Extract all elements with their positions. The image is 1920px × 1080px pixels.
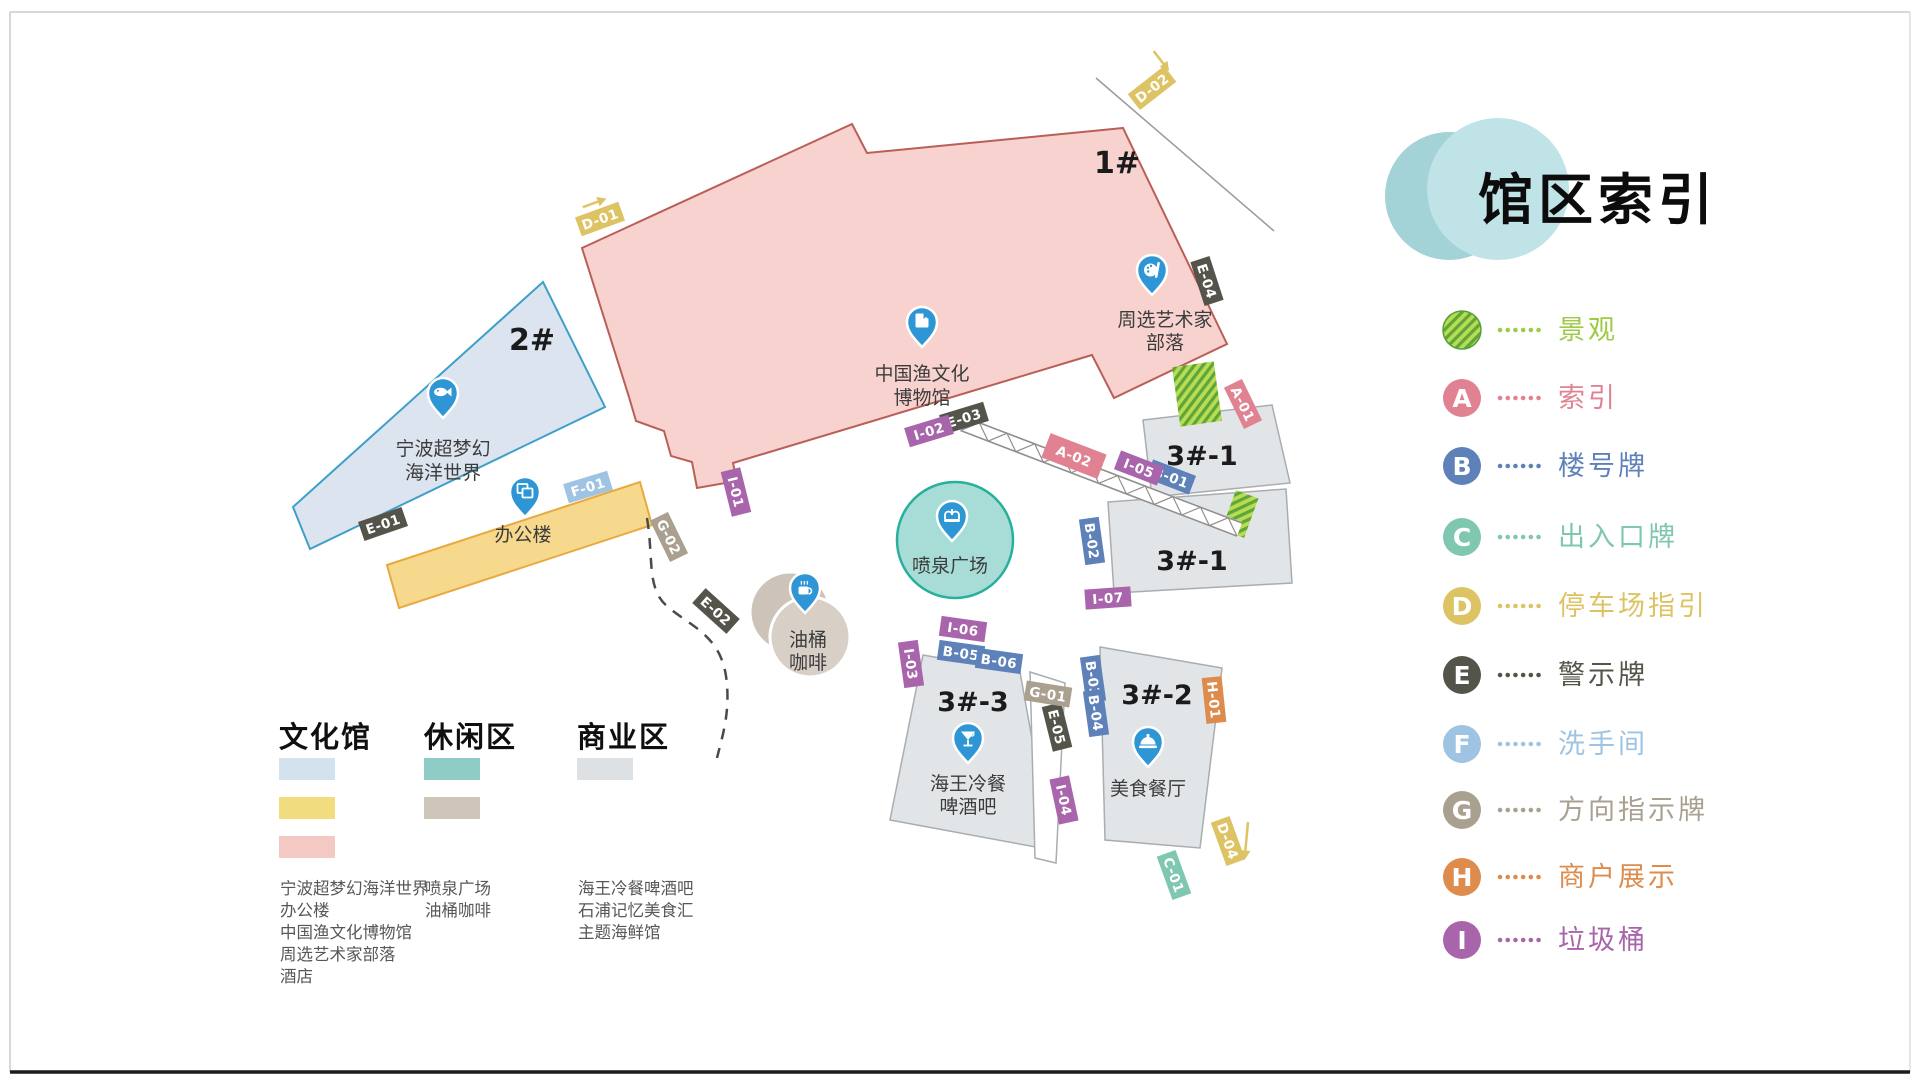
svg-text:出入口牌: 出入口牌 <box>1558 522 1678 553</box>
category-key: 文化馆 宁波超梦幻海洋世界 办公楼 中国渔文化博物馆 周选艺术家部落 酒店 休闲… <box>279 720 694 986</box>
svg-text:A: A <box>1452 384 1472 413</box>
swatch <box>279 836 335 858</box>
svg-text:B: B <box>1452 452 1471 481</box>
label-seabar-2: 啤酒吧 <box>939 796 996 818</box>
svg-text:I: I <box>1457 926 1466 955</box>
svg-text:周选艺术家部落: 周选艺术家部落 <box>280 945 396 964</box>
label-3-2-number: 3#-2 <box>1121 680 1192 711</box>
label-3-1-lower: 3#-1 <box>1156 546 1227 577</box>
legend-item-I: I 垃圾桶 <box>1443 921 1648 959</box>
label-ocean-world-1: 宁波超梦幻 <box>395 438 490 460</box>
tag-B-02: B-02 <box>1079 517 1105 565</box>
svg-text:商业区: 商业区 <box>577 720 670 754</box>
label-1-number: 1# <box>1094 146 1140 181</box>
tag-C-01: C-01 <box>1157 850 1192 900</box>
fountain-plaza-circle <box>897 482 1013 598</box>
tag-I-07: I-07 <box>1084 586 1131 609</box>
svg-text:停车场指引: 停车场指引 <box>1558 591 1708 622</box>
tag-I-02: I-02 <box>904 415 954 448</box>
legend-item-G: G 方向指示牌 <box>1443 791 1708 829</box>
legend-item-A: A 索引 <box>1443 379 1618 417</box>
svg-text:F: F <box>1453 730 1470 759</box>
label-museum-1: 中国渔文化 <box>874 363 969 385</box>
svg-text:H: H <box>1452 863 1473 892</box>
label-office: 办公楼 <box>494 524 551 546</box>
svg-text:E: E <box>1453 661 1470 690</box>
svg-text:办公楼: 办公楼 <box>280 901 330 920</box>
landscape-hatch-icon <box>1443 311 1481 349</box>
label-artist-1: 周选艺术家 <box>1117 309 1212 331</box>
swatch <box>577 758 633 780</box>
svg-text:商户展示: 商户展示 <box>1558 862 1678 893</box>
swatch <box>424 797 480 819</box>
tag-I-06: I-06 <box>939 616 987 642</box>
tag-D-04: D-04 <box>1211 816 1246 866</box>
svg-text:油桶咖啡: 油桶咖啡 <box>425 901 491 920</box>
tag-I-03: I-03 <box>898 640 924 688</box>
category-commerce: 商业区 海王冷餐啤酒吧 石浦记忆美食汇 主题海鲜馆 <box>577 720 694 942</box>
svg-text:警示牌: 警示牌 <box>1558 660 1648 691</box>
tag-I-01: I-01 <box>721 467 752 516</box>
category-culture: 文化馆 宁波超梦幻海洋世界 办公楼 中国渔文化博物馆 周选艺术家部落 酒店 <box>279 720 429 986</box>
svg-text:石浦记忆美食汇: 石浦记忆美食汇 <box>578 901 694 920</box>
svg-text:D: D <box>1452 592 1473 621</box>
label-museum-2: 博物馆 <box>893 387 950 409</box>
svg-text:I-07: I-07 <box>1092 590 1124 608</box>
legend-item-D: D 停车场指引 <box>1443 587 1708 625</box>
svg-text:垃圾桶: 垃圾桶 <box>1558 925 1648 956</box>
landscape-strip-1 <box>1172 361 1222 426</box>
index-title-block: 馆区索引 <box>1385 118 1718 260</box>
swatch <box>279 797 335 819</box>
svg-text:文化馆: 文化馆 <box>279 720 372 754</box>
page-title: 馆区索引 <box>1478 168 1718 232</box>
svg-text:宁波超梦幻海洋世界: 宁波超梦幻海洋世界 <box>280 879 429 898</box>
category-leisure: 休闲区 喷泉广场 油桶咖啡 <box>423 720 517 920</box>
label-3-3-number: 3#-3 <box>937 687 1008 718</box>
svg-text:中国渔文化博物馆: 中国渔文化博物馆 <box>280 923 412 942</box>
legend-item-B: B 楼号牌 <box>1443 447 1648 485</box>
legend-item-E: E 警示牌 <box>1443 656 1648 694</box>
svg-text:酒店: 酒店 <box>280 967 313 986</box>
tag-D-01: D-01 <box>571 190 625 236</box>
svg-text:景观: 景观 <box>1558 315 1618 346</box>
svg-text:楼号牌: 楼号牌 <box>1558 451 1648 482</box>
label-coffee-2: 咖啡 <box>789 652 827 674</box>
venue-index-map: 1# 2# 3#-1 3#-1 3#-3 3#-2 D-01 D-02 D-04… <box>0 0 1920 1080</box>
svg-text:休闲区: 休闲区 <box>423 720 517 754</box>
tag-E-02: E-02 <box>692 588 740 634</box>
label-ocean-world-2: 海洋世界 <box>405 462 481 484</box>
tag-G-02: G-02 <box>650 512 688 562</box>
label-coffee-1: 油桶 <box>789 629 827 651</box>
tag-D-02: D-02 <box>1117 48 1181 110</box>
building-3-1-lower <box>1108 489 1292 593</box>
legend: 景观 A 索引 B 楼号牌 C 出入口牌 D 停车场指引 <box>1443 311 1708 959</box>
office-pin <box>510 477 540 517</box>
swatch <box>424 758 480 780</box>
swatch <box>279 758 335 780</box>
svg-text:索引: 索引 <box>1558 383 1618 414</box>
label-foodhall: 美食餐厅 <box>1110 778 1186 800</box>
svg-text:洗手间: 洗手间 <box>1558 729 1648 760</box>
label-seabar-1: 海王冷餐 <box>930 773 1006 795</box>
label-2-number: 2# <box>509 323 555 358</box>
svg-text:海王冷餐啤酒吧: 海王冷餐啤酒吧 <box>578 879 694 898</box>
svg-text:喷泉广场: 喷泉广场 <box>425 879 491 898</box>
legend-item-H: H 商户展示 <box>1443 858 1678 896</box>
svg-text:C: C <box>1453 523 1471 552</box>
label-artist-2: 部落 <box>1146 332 1184 354</box>
legend-item-landscape: 景观 <box>1443 311 1618 349</box>
legend-item-F: F 洗手间 <box>1443 725 1648 763</box>
legend-item-C: C 出入口牌 <box>1443 518 1678 556</box>
label-3-1-upper: 3#-1 <box>1166 441 1237 472</box>
svg-text:主题海鲜馆: 主题海鲜馆 <box>578 923 661 942</box>
svg-text:方向指示牌: 方向指示牌 <box>1558 795 1708 826</box>
label-fountain: 喷泉广场 <box>912 555 988 577</box>
svg-text:G: G <box>1452 796 1473 825</box>
